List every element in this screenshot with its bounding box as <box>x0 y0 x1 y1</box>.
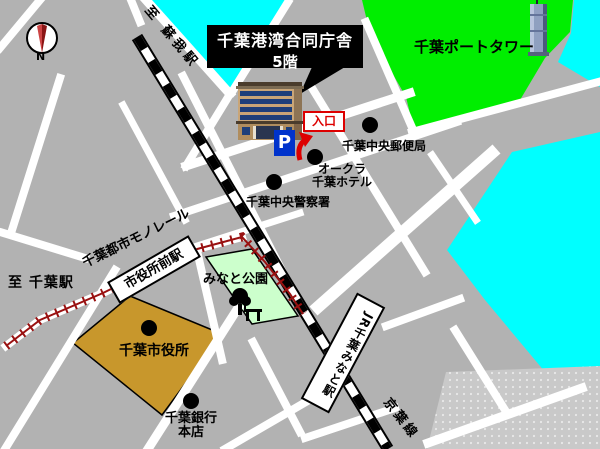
parking-sign: P <box>274 130 295 156</box>
hotel-label-line2: 千葉ホテル <box>303 176 381 189</box>
minato-park-label: みなと公園 <box>203 273 268 287</box>
callout-floor: 5階 <box>207 51 363 72</box>
callout-title: 千葉港湾合同庁舎 <box>207 27 363 51</box>
poi-marker-city-hall <box>141 320 157 336</box>
police-station-label: 千葉中央警察署 <box>246 196 330 209</box>
hotel-label: オークラ 千葉ホテル <box>303 163 381 189</box>
poi-marker-post-office <box>362 117 378 133</box>
bank-label: 千葉銀行 本店 <box>158 412 224 441</box>
callout-government-building: 千葉港湾合同庁舎 5階 <box>207 25 363 68</box>
port-tower-label: 千葉ポートタワー <box>414 39 534 56</box>
poi-marker-bank <box>183 393 199 409</box>
map-canvas: 千葉港湾合同庁舎 5階 千葉ポートタワー 至 蘇我駅 千葉中央郵便局 オークラ … <box>0 0 600 449</box>
bank-label-line2: 本店 <box>158 426 224 440</box>
entrance-badge: 入口 <box>303 111 345 132</box>
post-office-label: 千葉中央郵便局 <box>342 140 426 153</box>
to-chiba-direction-label: 至 千葉駅 <box>8 276 74 291</box>
city-hall-label: 千葉市役所 <box>119 344 189 359</box>
poi-marker-police <box>266 174 282 190</box>
compass-icon <box>27 23 57 53</box>
compass-north-label: N <box>36 51 45 63</box>
